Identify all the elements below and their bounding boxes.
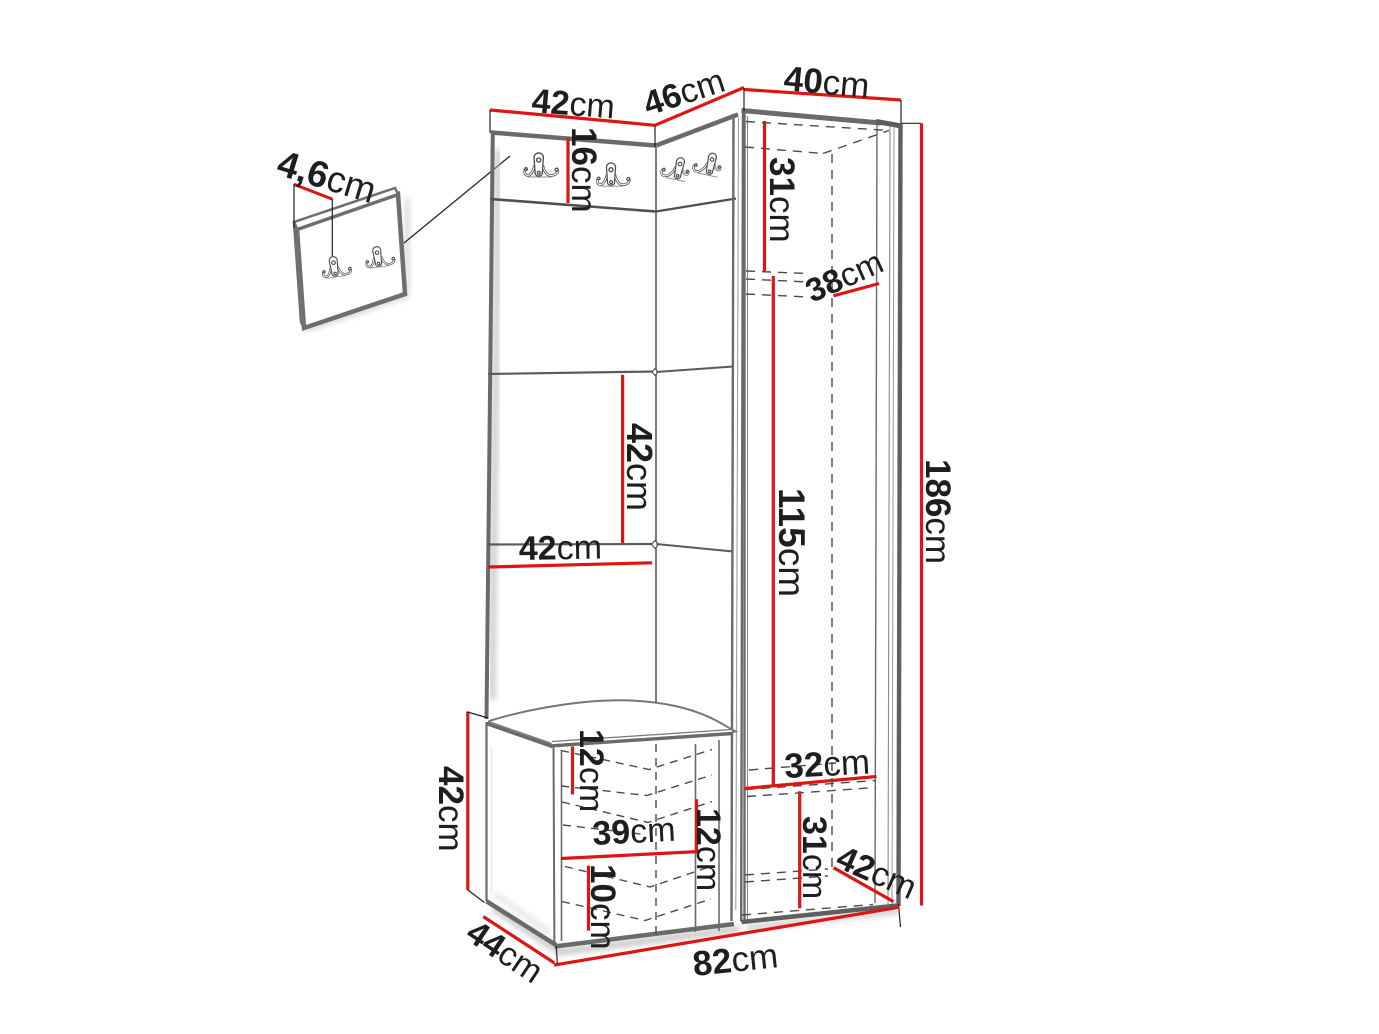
- svg-text:115cm: 115cm: [771, 488, 812, 597]
- svg-text:42cm: 42cm: [518, 529, 602, 568]
- svg-text:39cm: 39cm: [591, 811, 676, 853]
- svg-text:31cm: 31cm: [762, 157, 801, 243]
- svg-text:42cm: 42cm: [431, 766, 470, 852]
- svg-text:10cm: 10cm: [583, 864, 622, 950]
- svg-text:12cm: 12cm: [572, 729, 610, 812]
- svg-text:12cm: 12cm: [689, 808, 727, 891]
- svg-text:40cm: 40cm: [782, 59, 871, 106]
- svg-text:42cm: 42cm: [530, 82, 616, 126]
- svg-text:31cm: 31cm: [795, 816, 833, 899]
- svg-text:186cm: 186cm: [918, 459, 957, 564]
- svg-text:16cm: 16cm: [564, 127, 603, 213]
- svg-text:32cm: 32cm: [783, 743, 871, 786]
- svg-text:42cm: 42cm: [619, 423, 660, 511]
